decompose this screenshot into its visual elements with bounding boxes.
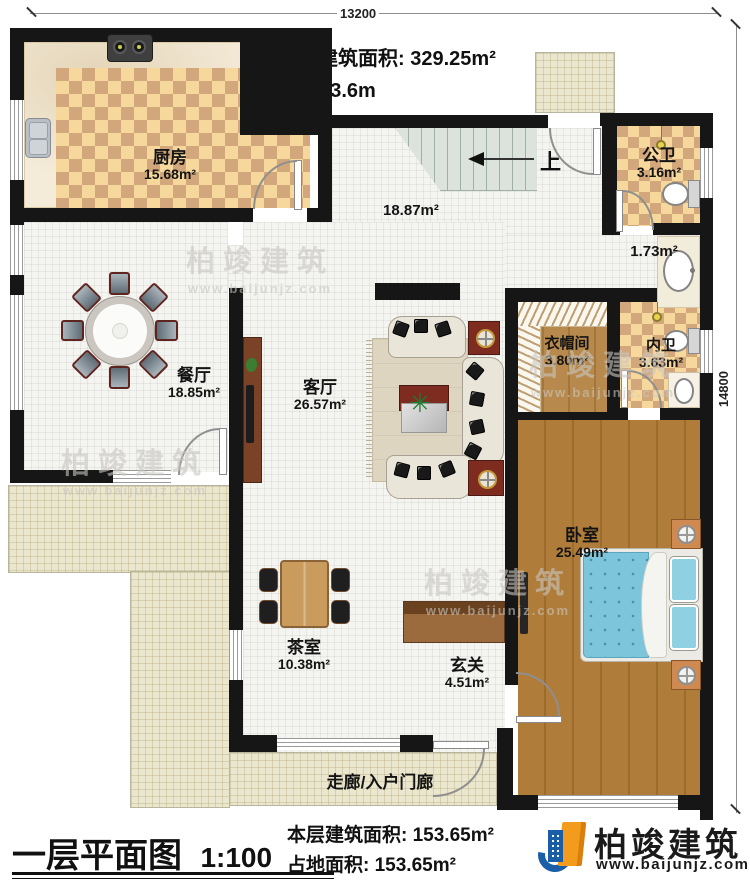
brand-logo: 柏竣建筑 www.baijunjz.com	[538, 818, 743, 878]
wall	[10, 470, 113, 483]
wall	[497, 795, 538, 810]
wall	[660, 408, 700, 420]
wall	[505, 302, 518, 685]
dining-chair	[155, 320, 178, 341]
wall	[400, 735, 433, 752]
room-label-tea-room: 茶室10.38m²	[262, 638, 346, 673]
tea-chair	[331, 568, 350, 592]
bedroom-tv	[520, 572, 528, 634]
door-leaf	[516, 716, 562, 723]
wall	[700, 198, 713, 330]
wall	[602, 113, 617, 235]
window	[277, 738, 400, 750]
footer-site-area: 占地面积: 153.65m²	[287, 850, 456, 877]
dimension-line-right	[736, 25, 737, 813]
room-label-dining: 餐厅18.85m²	[152, 366, 236, 401]
window	[113, 470, 171, 483]
wall	[318, 42, 332, 222]
sofa-pillow	[417, 466, 431, 480]
footer-floor-area: 本层建筑面积: 153.65m²	[287, 820, 494, 847]
table-ornament	[478, 470, 497, 489]
stove-burner	[113, 40, 127, 54]
brand-site: www.baijunjz.com	[596, 856, 749, 873]
wall	[229, 470, 243, 630]
wall	[10, 28, 24, 100]
sofa-pillow	[469, 419, 486, 436]
wall	[375, 283, 460, 300]
total-area-value: 329.25m²	[410, 48, 496, 70]
toilet-tank	[688, 180, 700, 208]
wall	[229, 735, 277, 752]
window	[700, 148, 713, 198]
room-label-bedroom: 卧室25.49m²	[540, 526, 624, 561]
tea-chair	[259, 568, 278, 592]
dimension-label-height: 14800	[716, 368, 731, 410]
tv	[246, 385, 254, 443]
bed-duvet	[641, 552, 667, 658]
stove-burner	[132, 40, 146, 54]
foyer-cabinet	[403, 601, 505, 643]
bed-pillow	[670, 557, 698, 602]
nightstand-lamp	[677, 525, 696, 544]
room-label-porch: 走廊/入户门廊	[300, 768, 460, 793]
wall	[307, 208, 332, 222]
tea-chair	[331, 600, 350, 624]
bed-mattress	[583, 552, 649, 658]
dimension-tick	[26, 7, 37, 18]
door-leaf	[616, 190, 623, 232]
room-label-living: 客厅26.57m²	[278, 378, 362, 413]
faucet	[690, 268, 695, 273]
door-leaf	[433, 741, 489, 749]
dimension-label-width: 13200	[337, 6, 379, 21]
door-leaf	[621, 370, 628, 408]
wall	[678, 795, 713, 810]
nightstand-lamp	[677, 666, 696, 685]
room-label-kitchen: 厨房15.68m²	[120, 148, 220, 183]
window	[10, 225, 24, 275]
door-leaf	[219, 428, 227, 475]
dining-chair	[109, 366, 130, 389]
wall	[332, 115, 548, 128]
room-label-wash-nook: 1.73m²	[622, 243, 686, 260]
tea-chair	[259, 600, 278, 624]
table-ornament	[476, 329, 495, 348]
terrace-floor	[130, 571, 230, 808]
stairs-arrow	[468, 152, 484, 166]
rug-fringe	[366, 340, 372, 480]
wall	[620, 408, 628, 420]
sofa-pillow	[414, 319, 428, 333]
coffee-table: ✳	[399, 385, 449, 435]
dining-chair	[61, 320, 84, 341]
stairs-arrow-line	[484, 158, 534, 160]
floor-plan: 13200 14800 本栋建筑面积: 329.25m² 层高: 3.6m 上	[0, 0, 750, 884]
plan-scale: 1:100	[200, 842, 272, 873]
room-label-foyer: 玄关4.51m²	[428, 656, 506, 691]
bed-pillow	[670, 605, 698, 650]
wall	[607, 302, 620, 420]
entry-landing	[535, 52, 615, 113]
plan-title: 一层平面图	[12, 837, 182, 875]
floor-height-value: 3.6m	[330, 80, 376, 102]
wash-basin	[674, 378, 694, 404]
wall	[700, 113, 713, 148]
dining-chair	[109, 272, 130, 295]
room-label-public-bath: 公卫3.16m²	[626, 146, 692, 181]
room-label-cloakroom: 衣帽间3.80m²	[528, 336, 606, 368]
window	[229, 630, 243, 680]
wall	[10, 208, 253, 222]
terrace-floor	[8, 485, 230, 573]
brand-logo-icon	[538, 820, 588, 878]
wardrobe-hanger-rail	[518, 302, 607, 327]
room-label-stair-hall: 18.87m²	[383, 202, 463, 219]
cloakroom-threshold	[518, 412, 607, 420]
door-leaf	[593, 128, 601, 175]
window	[700, 330, 713, 373]
kitchen-sink	[25, 118, 51, 158]
wall	[10, 275, 24, 295]
pendant-lamp	[652, 312, 662, 322]
sofa-pillow	[469, 391, 485, 407]
room-label-ensuite: 内卫3.63m²	[624, 338, 698, 370]
window	[10, 295, 24, 410]
stove	[107, 34, 153, 62]
window	[10, 100, 24, 180]
tea-table	[280, 560, 329, 628]
toilet	[662, 182, 689, 206]
coffee-table-plant: ✳	[409, 390, 431, 416]
title-underline	[12, 878, 334, 879]
window	[538, 795, 678, 810]
title-underline	[12, 872, 334, 875]
dimension-tick	[711, 7, 722, 18]
